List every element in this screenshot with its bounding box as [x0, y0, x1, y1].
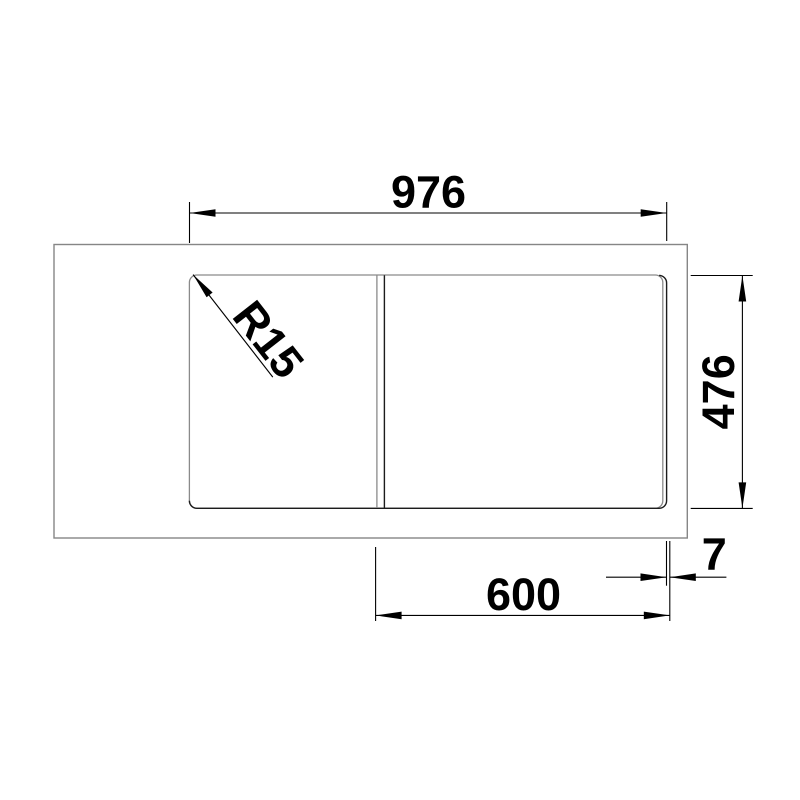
svg-text:976: 976 — [391, 167, 466, 218]
svg-text:R15: R15 — [223, 291, 314, 387]
svg-text:476: 476 — [693, 354, 744, 429]
svg-text:600: 600 — [486, 569, 561, 620]
svg-text:7: 7 — [702, 529, 727, 580]
